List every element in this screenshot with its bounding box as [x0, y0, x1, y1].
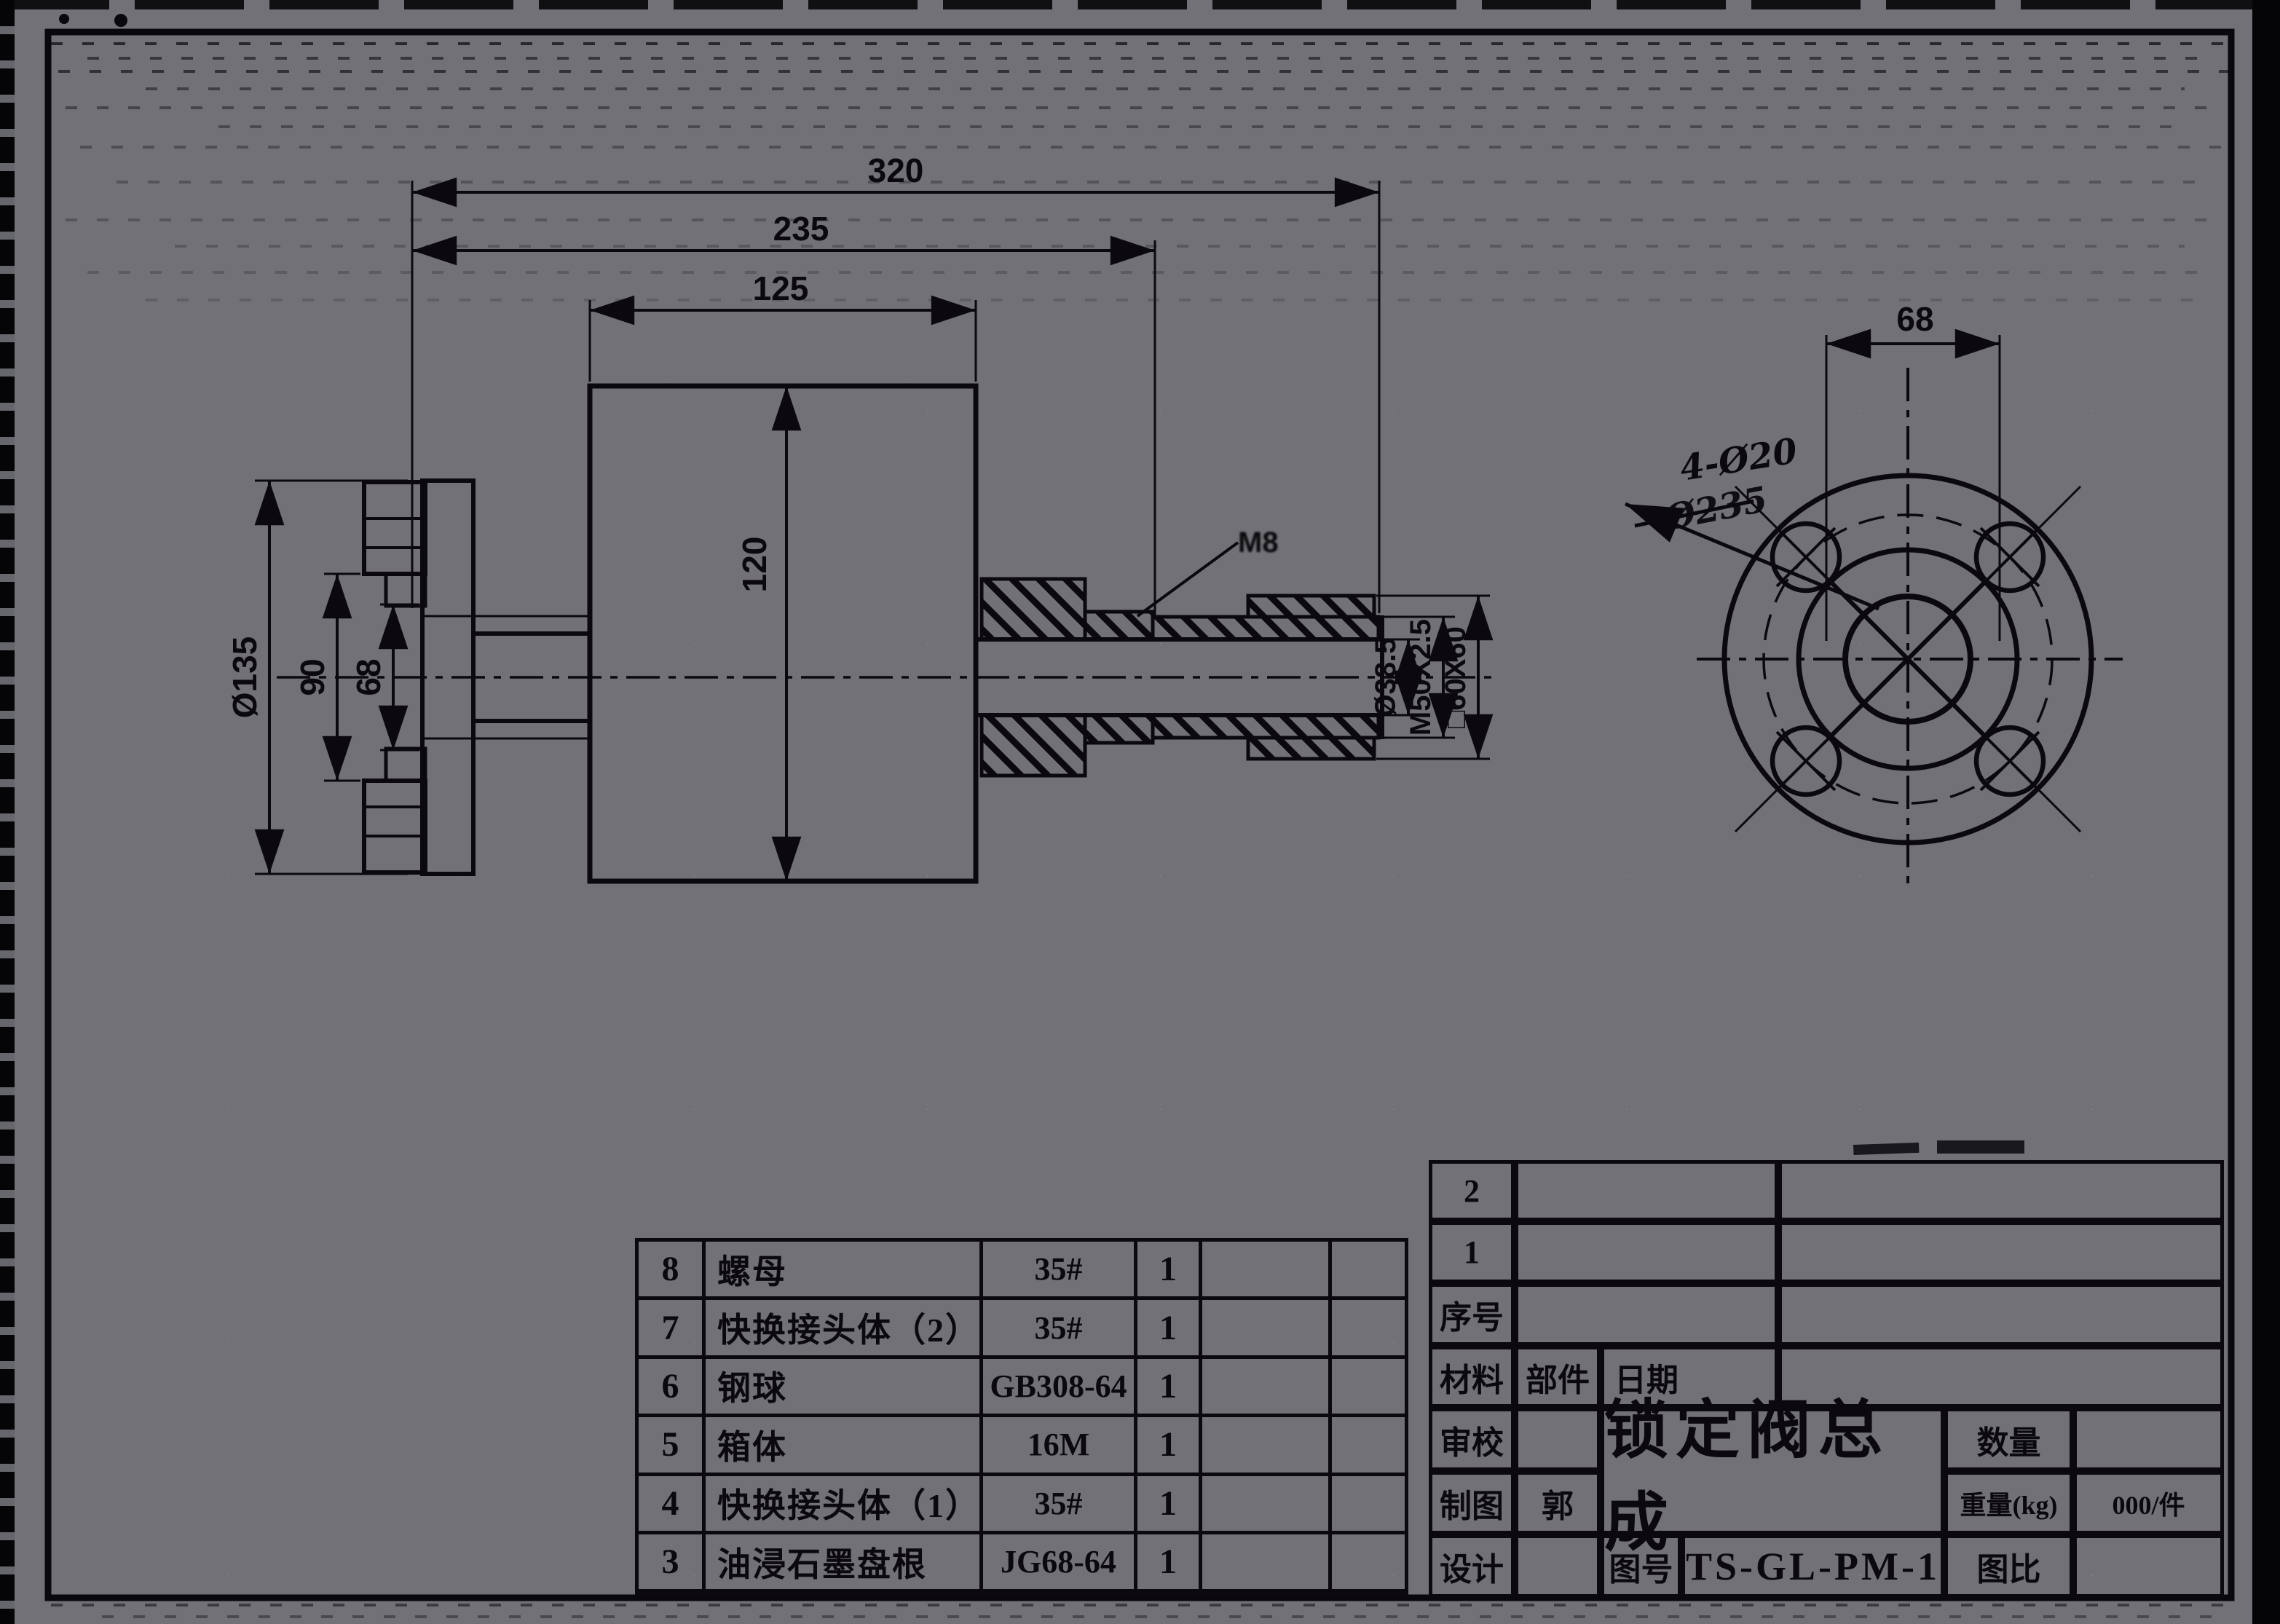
- tb-weight-value: 000/件: [2073, 1471, 2224, 1534]
- bom-empty: [1332, 1534, 1405, 1593]
- bom-spec: 35#: [983, 1300, 1137, 1358]
- dim-320: 320: [868, 151, 924, 189]
- bom-part-name: 油浸石墨盘根: [706, 1534, 983, 1593]
- tb-empty: [1515, 1534, 1601, 1598]
- bom-part-name: 钢球: [706, 1359, 983, 1417]
- bom-no: 3: [639, 1534, 706, 1593]
- note-holes: 4-Ø20: [1677, 430, 1800, 489]
- tb-drawing-no: TS-GL-PM-1: [1681, 1534, 1944, 1598]
- tb-empty: [1515, 1160, 1778, 1221]
- dim-235: 235: [773, 210, 829, 248]
- bom-empty: [1332, 1417, 1405, 1475]
- bom-no: 4: [639, 1476, 706, 1534]
- bom-empty: [1202, 1242, 1332, 1300]
- tb-draft-by: 郭: [1515, 1471, 1601, 1534]
- tb-empty: [1778, 1160, 2224, 1221]
- bom-part-name: 螺母: [706, 1242, 983, 1300]
- dim-thread: M50X2.5: [1405, 619, 1437, 736]
- bom-spec: 16M: [983, 1417, 1137, 1475]
- tb-part-label: 部件: [1515, 1346, 1601, 1408]
- dim-125: 125: [753, 269, 809, 307]
- tb-design-label: 设计: [1429, 1534, 1515, 1598]
- tb-qty-label: 数量: [1944, 1408, 2073, 1471]
- bom-empty: [1332, 1242, 1405, 1300]
- coupler-section: [976, 543, 1382, 776]
- tb-empty: [1778, 1283, 2224, 1346]
- tb-drawing-no-label: 图号: [1601, 1534, 1681, 1598]
- bom-no: 7: [639, 1300, 706, 1358]
- bom-empty: [1332, 1476, 1405, 1534]
- tb-seq-1: 1: [1429, 1221, 1515, 1283]
- bom-empty: [1202, 1300, 1332, 1358]
- bom-table: 8 螺母 35# 1 7 快换接头体（2） 35# 1 6 钢球 GB308-6…: [635, 1238, 1408, 1596]
- tb-empty: [1515, 1221, 1778, 1283]
- tb-empty: [1515, 1408, 1601, 1471]
- tb-seq-2: 2: [1429, 1160, 1515, 1221]
- dim-120: 120: [735, 537, 773, 593]
- tb-draft-label: 制图: [1429, 1471, 1515, 1534]
- note-struck: Ø235: [1660, 479, 1771, 539]
- bom-qty: 1: [1137, 1534, 1202, 1593]
- bom-part-name: 箱体: [706, 1417, 983, 1475]
- dim-flange-od: Ø135: [226, 636, 264, 719]
- tb-weight-label: 重量(kg): [1944, 1471, 2073, 1534]
- bom-empty: [1332, 1300, 1405, 1358]
- bom-qty: 1: [1137, 1417, 1202, 1475]
- bom-empty: [1202, 1534, 1332, 1593]
- bom-part-name: 快换接头体（2）: [706, 1300, 983, 1358]
- tb-seq-label: 序号: [1429, 1283, 1515, 1346]
- bom-part-name: 快换接头体（1）: [706, 1476, 983, 1534]
- scan-edge-left: [0, 0, 15, 1624]
- side-section-view: [255, 181, 1500, 881]
- tb-empty: [2073, 1534, 2224, 1598]
- bom-no: 5: [639, 1417, 706, 1475]
- tb-empty: [2073, 1408, 2224, 1471]
- tb-material-label: 材料: [1429, 1346, 1515, 1408]
- tb-drawing-title: 锁定阀总成: [1601, 1408, 1944, 1534]
- scan-edge-top: [0, 0, 2280, 9]
- bom-empty: [1202, 1476, 1332, 1534]
- dim-68-front: 68: [1896, 300, 1933, 338]
- leader-note-m8: M8: [1238, 527, 1279, 559]
- bom-qty: 1: [1137, 1300, 1202, 1358]
- dim-68-side: 68: [350, 658, 387, 695]
- bom-spec: 35#: [983, 1242, 1137, 1300]
- title-block: 2 1 序号 材料 部件 日期 审校 锁定阀总成 数量 制图 郭 重量(kg) …: [1429, 1160, 2224, 1598]
- scan-edge-right: [2252, 0, 2280, 1624]
- front-flange-view: [1625, 335, 2123, 888]
- tb-check-label: 审校: [1429, 1408, 1515, 1471]
- scanned-drawing-page: 320 235 125 120 Ø135 90 68 Ø38.5 M50X2.5…: [0, 0, 2280, 1624]
- bom-empty: [1202, 1417, 1332, 1475]
- bom-empty: [1202, 1359, 1332, 1417]
- bom-qty: 1: [1137, 1359, 1202, 1417]
- tb-scale-label: 图比: [1944, 1534, 2073, 1598]
- bom-spec: 35#: [983, 1476, 1137, 1534]
- bom-spec: JG68-64: [983, 1534, 1137, 1593]
- bom-no: 6: [639, 1359, 706, 1417]
- tb-empty: [1778, 1221, 2224, 1283]
- dim-square: □60X60: [1440, 626, 1472, 728]
- bom-qty: 1: [1137, 1476, 1202, 1534]
- bom-qty: 1: [1137, 1242, 1202, 1300]
- bom-spec: GB308-64: [983, 1359, 1137, 1417]
- valve-body-outline: [590, 386, 976, 881]
- bom-no: 8: [639, 1242, 706, 1300]
- dim-bore: Ø38.5: [1370, 638, 1402, 717]
- bom-empty: [1332, 1359, 1405, 1417]
- tb-empty: [1515, 1283, 1778, 1346]
- dim-90: 90: [293, 658, 331, 695]
